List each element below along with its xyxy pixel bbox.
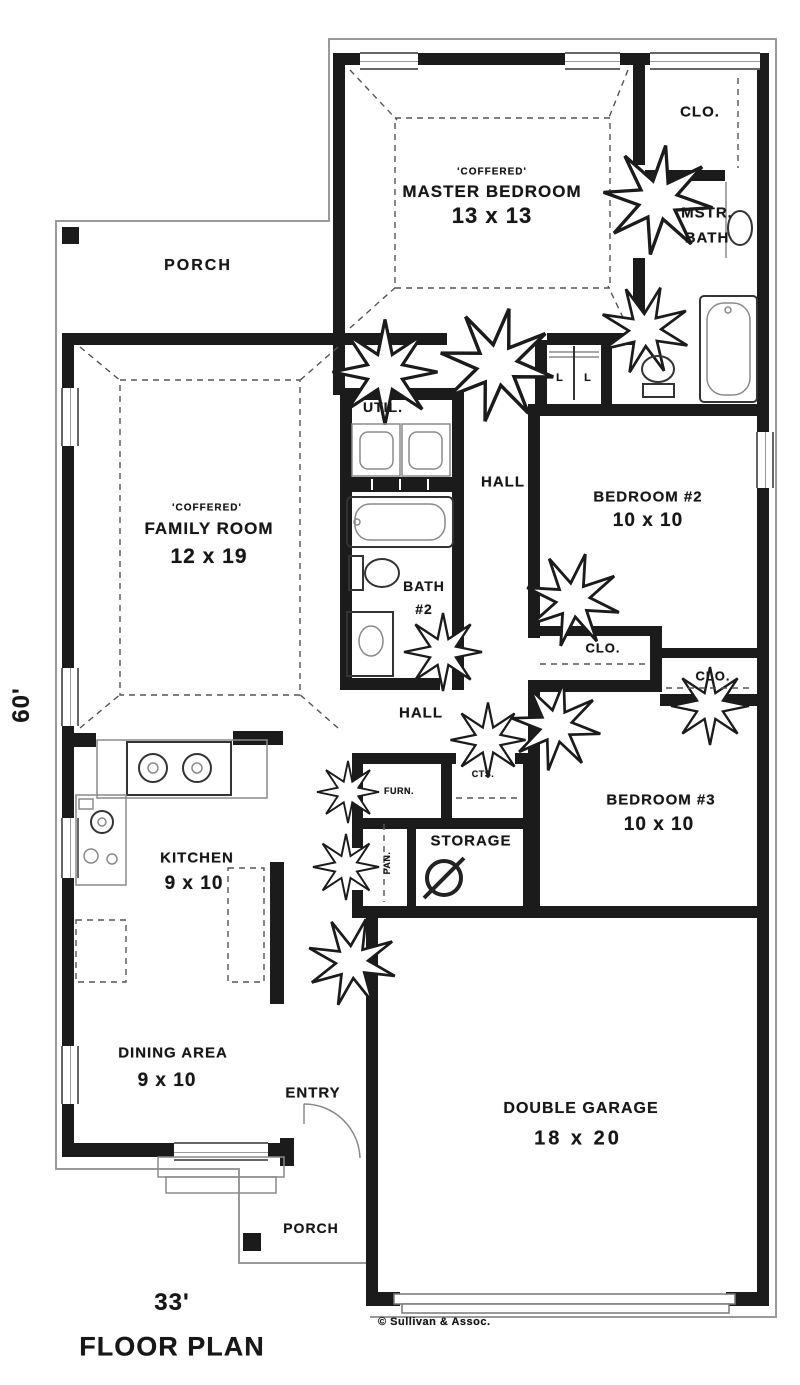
label-porch-bottom: PORCH — [283, 1220, 339, 1236]
label-dining-area: DINING AREA — [118, 1045, 228, 1062]
bathtub — [347, 497, 453, 547]
fixtures-layer — [0, 0, 800, 1385]
label-bath-2-2: #2 — [415, 601, 433, 617]
refrigerator — [76, 920, 126, 982]
label-coats: CTS. — [472, 769, 495, 779]
entry-door — [304, 1104, 360, 1158]
window-sill — [158, 1157, 284, 1193]
credit-text: © Sullivan & Assoc. — [378, 1316, 491, 1328]
label-linen-2: L — [584, 372, 592, 384]
peninsula-counter — [228, 868, 264, 982]
label-bedroom-2-dims: 10 x 10 — [613, 510, 683, 532]
label-entry: ENTRY — [285, 1085, 340, 1102]
label-furnace: FURN. — [384, 786, 414, 796]
label-family-ceiling: 'COFFERED' — [172, 503, 242, 514]
label-kitchen: KITCHEN — [160, 850, 234, 867]
toilet — [349, 556, 399, 590]
label-family-room: FAMILY ROOM — [144, 519, 273, 539]
label-garage: DOUBLE GARAGE — [503, 1100, 658, 1118]
washer-dryer — [345, 424, 453, 492]
water-heater — [424, 858, 464, 898]
label-family-dims: 12 x 19 — [170, 545, 247, 569]
label-hall-lower: HALL — [399, 705, 443, 722]
label-pantry: PAN. — [382, 852, 392, 875]
label-master-bath-2: BATH — [685, 230, 730, 247]
label-storage: STORAGE — [431, 833, 512, 850]
plan-title: FLOOR PLAN — [79, 1332, 265, 1363]
label-utility: UTIL. — [363, 399, 403, 415]
label-hall-upper: HALL — [481, 474, 525, 491]
label-dining-dims: 9 x 10 — [138, 1070, 197, 1092]
label-porch-top: PORCH — [164, 257, 232, 275]
label-master-dims: 13 x 13 — [452, 203, 532, 229]
label-bedroom-3: BEDROOM #3 — [606, 792, 715, 809]
label-closet-2: CLO. — [585, 641, 620, 656]
floor-plan: PORCH 'COFFERED' MASTER BEDROOM 13 x 13 … — [0, 0, 800, 1385]
dimension-60ft: 60' — [8, 687, 36, 722]
vanity-sink — [347, 612, 393, 676]
garage-door — [394, 1294, 735, 1313]
label-bedroom-2: BEDROOM #2 — [593, 489, 702, 506]
label-master-ceiling: 'COFFERED' — [457, 167, 527, 178]
label-bath-2-1: BATH — [403, 578, 445, 594]
label-bedroom-3-dims: 10 x 10 — [624, 814, 694, 836]
label-garage-dims: 18 x 20 — [534, 1128, 622, 1151]
label-master-bath-1: MSTR. — [681, 205, 733, 222]
range-counter — [97, 740, 267, 798]
label-master-bedroom: MASTER BEDROOM — [402, 182, 581, 202]
kitchen-sink — [76, 795, 126, 885]
bathtub — [700, 296, 757, 402]
label-kitchen-dims: 9 x 10 — [165, 873, 224, 895]
dimension-33ft: 33' — [154, 1289, 189, 1317]
label-linen-1: L — [556, 372, 564, 384]
label-master-closet: CLO. — [680, 104, 720, 121]
label-closet-3: CLO. — [695, 669, 730, 684]
